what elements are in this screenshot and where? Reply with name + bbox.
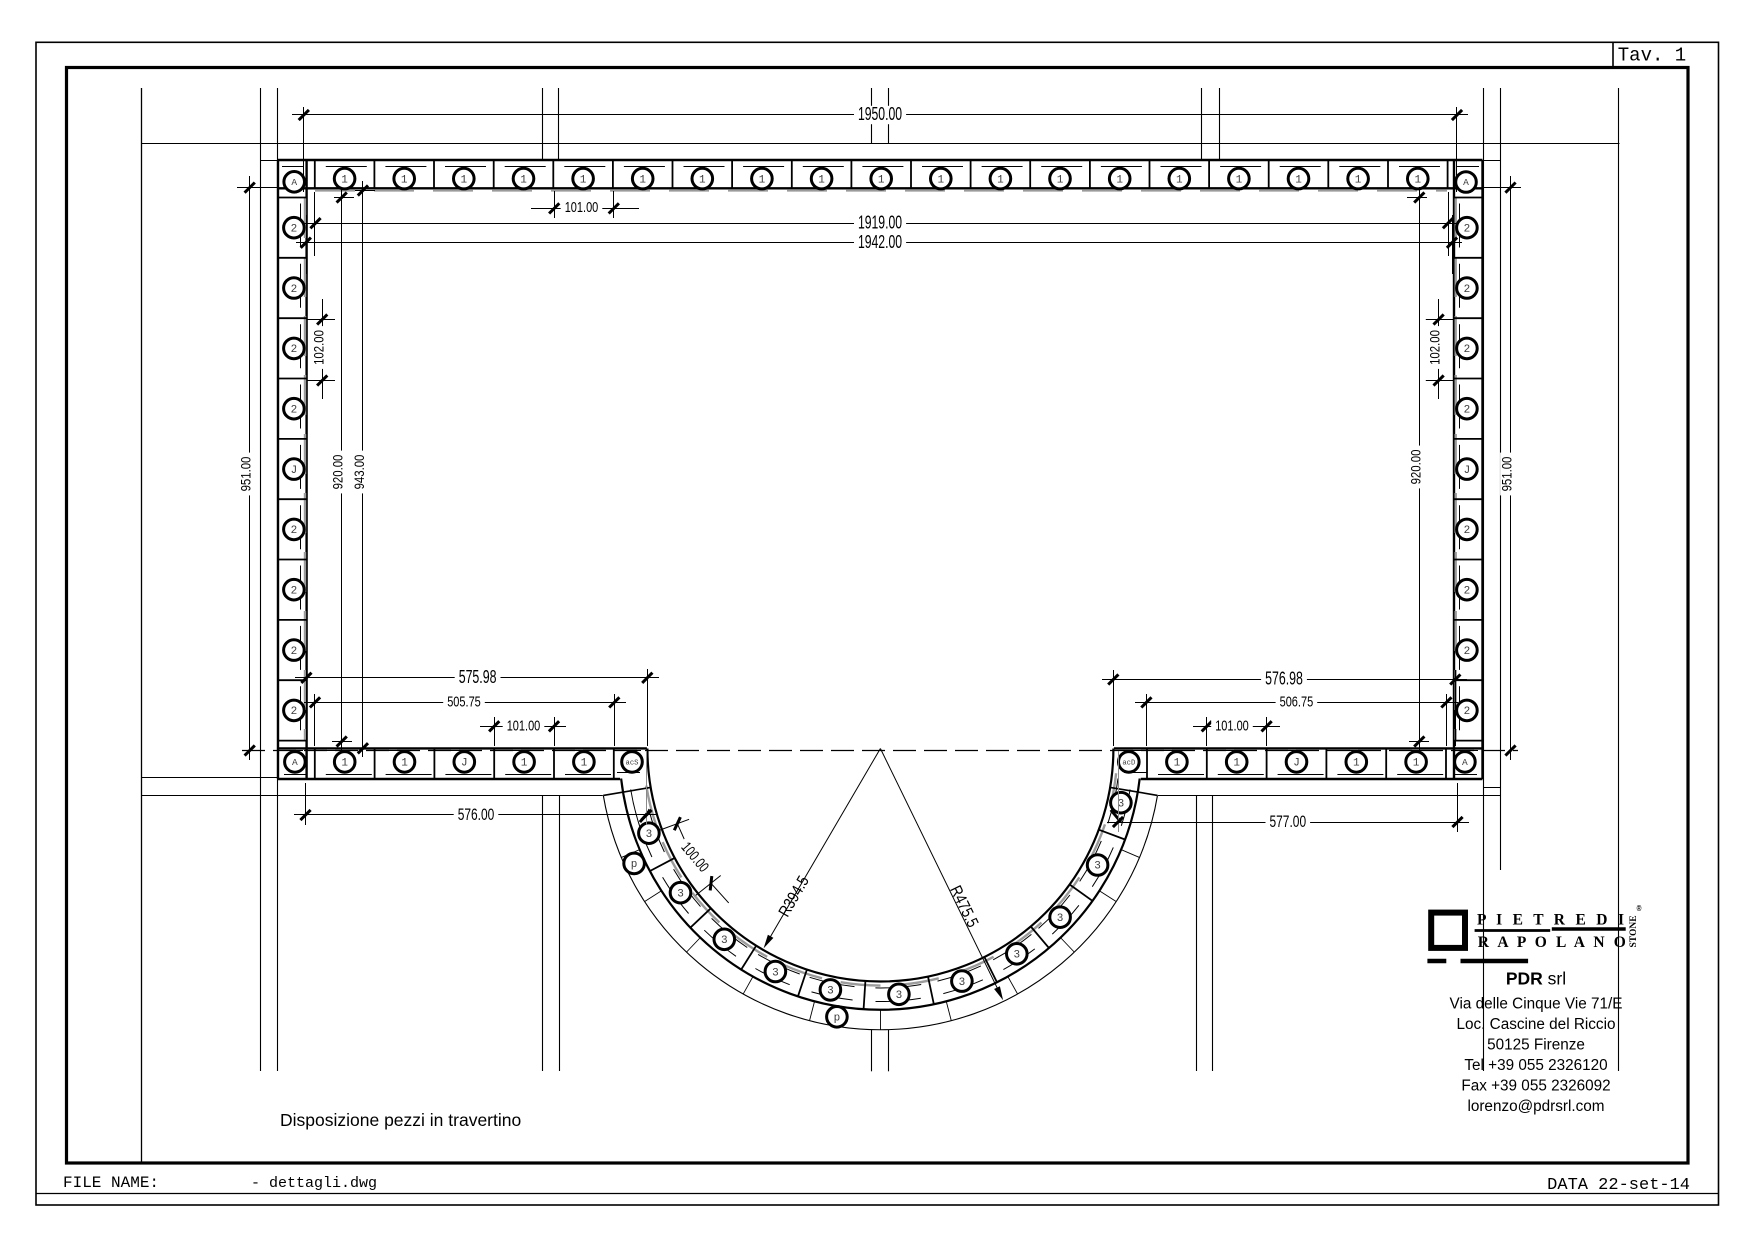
- svg-text:R475.5: R475.5: [946, 883, 981, 930]
- svg-text:2: 2: [1464, 706, 1471, 718]
- svg-text:R A P O L A N O: R A P O L A N O: [1478, 934, 1626, 951]
- svg-text:101.00: 101.00: [565, 199, 599, 216]
- svg-text:P I E T R E D I: P I E T R E D I: [1477, 912, 1624, 929]
- svg-text:3: 3: [721, 935, 728, 947]
- svg-text:3: 3: [1013, 950, 1020, 962]
- svg-text:J: J: [1293, 758, 1300, 770]
- svg-text:acD: acD: [1122, 759, 1135, 767]
- svg-text:1: 1: [1236, 174, 1243, 186]
- svg-text:Tav. 1: Tav. 1: [1618, 45, 1686, 67]
- svg-text:Tel +39 055 2326120: Tel +39 055 2326120: [1464, 1057, 1607, 1074]
- svg-text:1: 1: [1233, 758, 1240, 770]
- svg-text:1: 1: [401, 758, 408, 770]
- svg-text:2: 2: [1464, 284, 1471, 296]
- svg-text:1: 1: [521, 758, 528, 770]
- svg-text:1: 1: [1174, 758, 1181, 770]
- svg-text:1: 1: [759, 174, 766, 186]
- svg-text:2: 2: [1464, 525, 1471, 537]
- svg-text:920.00: 920.00: [330, 454, 346, 489]
- svg-text:acS: acS: [626, 759, 639, 767]
- svg-text:575.98: 575.98: [459, 666, 497, 687]
- svg-text:STONE: STONE: [1629, 915, 1639, 947]
- svg-text:101.00: 101.00: [507, 718, 541, 735]
- svg-text:50125 Firenze: 50125 Firenze: [1487, 1037, 1585, 1054]
- svg-text:506.75: 506.75: [1280, 694, 1314, 711]
- svg-text:1: 1: [818, 174, 825, 186]
- svg-text:951.00: 951.00: [238, 456, 254, 491]
- svg-text:2: 2: [1464, 223, 1471, 235]
- svg-text:Loc. Cascine del Riccio: Loc. Cascine del Riccio: [1457, 1016, 1616, 1033]
- svg-text:2: 2: [1464, 586, 1471, 598]
- svg-text:- dettagli.dwg: - dettagli.dwg: [251, 1175, 377, 1192]
- svg-text:2: 2: [1464, 344, 1471, 356]
- svg-text:1: 1: [520, 174, 527, 186]
- svg-text:1: 1: [1413, 758, 1420, 770]
- svg-text:J: J: [291, 465, 298, 477]
- svg-text:102.00: 102.00: [310, 330, 326, 365]
- svg-text:p: p: [631, 859, 638, 871]
- svg-text:DATA 22-set-14: DATA 22-set-14: [1547, 1176, 1690, 1195]
- svg-text:Fax +39 055 2326092: Fax +39 055 2326092: [1461, 1078, 1610, 1095]
- svg-text:576.00: 576.00: [458, 805, 495, 824]
- svg-text:1: 1: [1414, 174, 1421, 186]
- svg-text:1: 1: [401, 174, 408, 186]
- svg-text:3: 3: [772, 967, 779, 979]
- svg-text:1: 1: [1353, 758, 1360, 770]
- svg-text:1: 1: [699, 174, 706, 186]
- svg-text:PDR srl: PDR srl: [1506, 969, 1566, 989]
- svg-text:1: 1: [460, 174, 467, 186]
- svg-text:1: 1: [1355, 174, 1362, 186]
- svg-text:A: A: [291, 177, 297, 188]
- svg-text:2: 2: [291, 706, 298, 718]
- svg-text:505.75: 505.75: [447, 694, 481, 711]
- svg-text:Via delle Cinque Vie 71/E: Via delle Cinque Vie 71/E: [1450, 996, 1623, 1013]
- svg-text:2: 2: [291, 405, 298, 417]
- svg-text:1942.00: 1942.00: [858, 231, 902, 252]
- svg-text:J: J: [461, 758, 468, 770]
- svg-text:951.00: 951.00: [1499, 456, 1515, 491]
- svg-text:A: A: [1463, 177, 1469, 188]
- svg-text:1: 1: [997, 174, 1004, 186]
- svg-text:1: 1: [878, 174, 885, 186]
- svg-text:1950.00: 1950.00: [858, 103, 902, 124]
- svg-text:2: 2: [291, 284, 298, 296]
- svg-text:1: 1: [580, 174, 587, 186]
- svg-text:1: 1: [1295, 174, 1302, 186]
- svg-text:3: 3: [1094, 861, 1101, 873]
- svg-text:943.00: 943.00: [351, 454, 367, 489]
- svg-text:1: 1: [639, 174, 646, 186]
- svg-text:3: 3: [896, 990, 903, 1002]
- svg-text:1: 1: [937, 174, 944, 186]
- svg-text:1: 1: [1176, 174, 1183, 186]
- svg-text:1: 1: [341, 758, 348, 770]
- svg-text:3: 3: [677, 888, 684, 900]
- svg-text:A: A: [292, 757, 298, 768]
- svg-text:1919.00: 1919.00: [858, 211, 902, 232]
- svg-text:2: 2: [291, 344, 298, 356]
- svg-text:Disposizione pezzi in traverti: Disposizione pezzi in travertino: [280, 1110, 521, 1130]
- svg-text:lorenzo@pdrsrl.com: lorenzo@pdrsrl.com: [1467, 1098, 1604, 1115]
- svg-text:577.00: 577.00: [1270, 812, 1307, 831]
- svg-text:R394.5: R394.5: [775, 873, 813, 920]
- svg-text:2: 2: [291, 586, 298, 598]
- svg-text:FILE NAME:: FILE NAME:: [63, 1174, 159, 1192]
- svg-text:920.00: 920.00: [1407, 449, 1423, 484]
- svg-text:3: 3: [1057, 913, 1064, 925]
- svg-text:3: 3: [959, 977, 966, 989]
- svg-text:1: 1: [581, 758, 588, 770]
- svg-text:J: J: [1464, 465, 1471, 477]
- svg-text:576.98: 576.98: [1265, 668, 1303, 689]
- svg-text:A: A: [1462, 757, 1468, 768]
- svg-text:3: 3: [827, 986, 834, 998]
- svg-text:1: 1: [1116, 174, 1123, 186]
- svg-text:®: ®: [1637, 905, 1642, 914]
- svg-text:2: 2: [291, 646, 298, 658]
- svg-text:p: p: [834, 1013, 841, 1025]
- svg-text:2: 2: [1464, 405, 1471, 417]
- svg-text:1: 1: [1057, 174, 1064, 186]
- svg-text:2: 2: [1464, 646, 1471, 658]
- svg-text:3: 3: [646, 829, 653, 841]
- svg-text:2: 2: [291, 525, 298, 537]
- svg-text:102.00: 102.00: [1427, 330, 1443, 365]
- svg-text:1: 1: [341, 174, 348, 186]
- svg-text:101.00: 101.00: [1215, 718, 1249, 735]
- svg-text:2: 2: [291, 223, 298, 235]
